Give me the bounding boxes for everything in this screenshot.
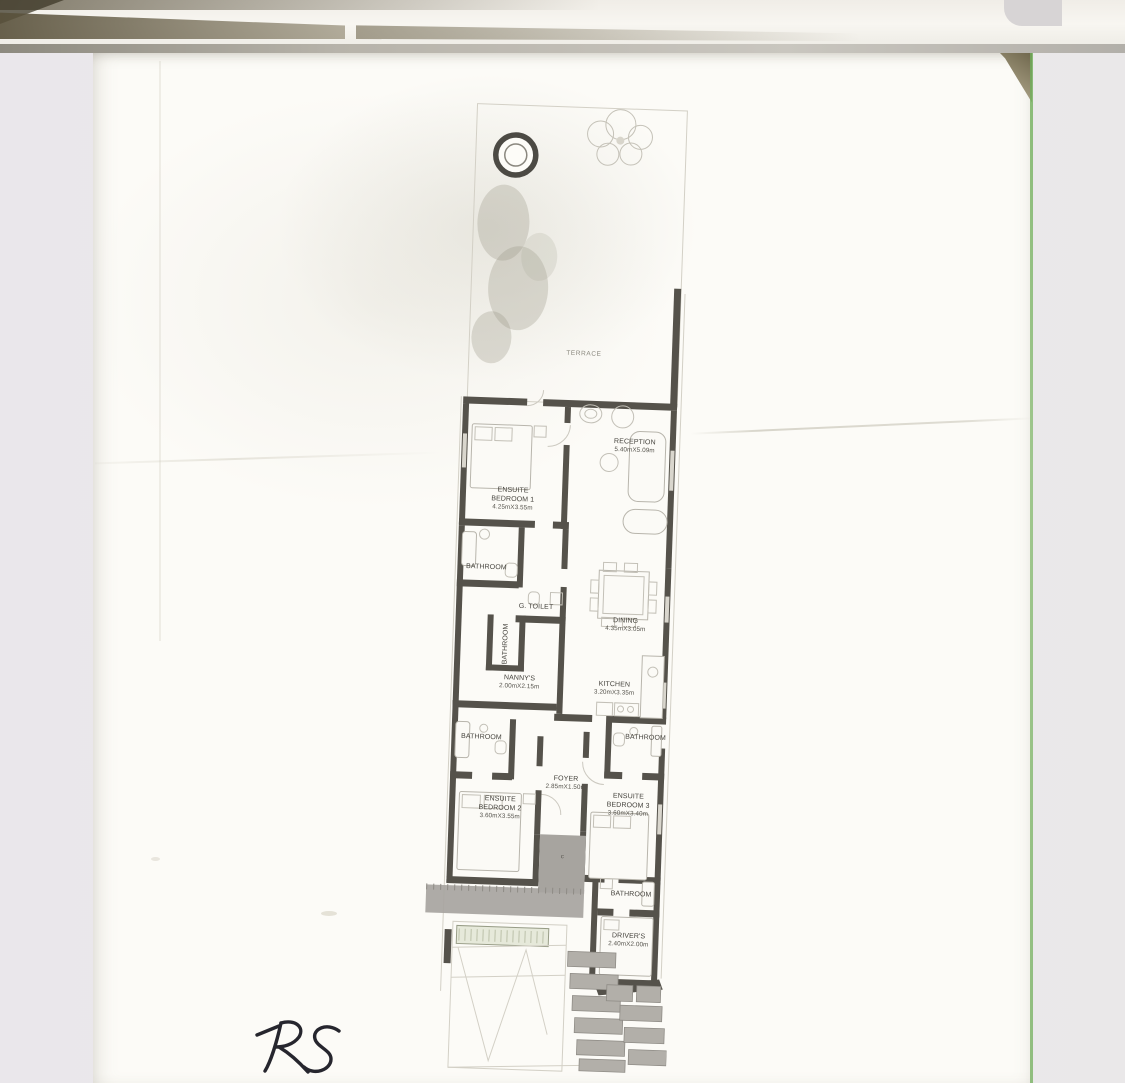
room-label-bedroom1: ENSUITE BEDROOM 1 4.25mX3.55m — [480, 485, 545, 514]
tree-icon — [586, 109, 653, 167]
floor-plan-page: TERRACE RECEPTION 5.40mX5.09m ENSUITE BE… — [93, 53, 1032, 1083]
handwritten-initials — [243, 1005, 373, 1083]
room-name: BATHROOM — [500, 619, 511, 669]
room-label-bedroom2: ENSUITE BEDROOM 2 3.60mX3.55m — [468, 794, 533, 823]
room-name: ENSUITE BEDROOM 3 — [596, 791, 661, 811]
room-label-bedroom3: ENSUITE BEDROOM 3 3.60mX3.40m — [596, 791, 661, 820]
paper-crease — [159, 61, 161, 641]
paper-crease — [690, 417, 1034, 435]
room-label-bathroom-shaft: BATHROOM — [500, 619, 511, 669]
terrace-planting — [471, 184, 560, 366]
sheet-shadow — [0, 0, 600, 10]
room-label-drivers: DRIVER'S 2.40mX2.00m — [596, 931, 661, 950]
sheet-fold-shadow — [356, 24, 861, 41]
previous-sheet-edge — [0, 0, 1125, 44]
room-name: ENSUITE BEDROOM 1 — [481, 485, 546, 505]
room-label-dining: DINING 4.35mX3.05m — [593, 615, 658, 634]
sheet-fold-shadow — [0, 11, 345, 39]
paper-crease — [95, 452, 440, 465]
room-label-reception: RECEPTION 5.40mX5.09m — [602, 437, 667, 456]
sheet-corner-grey — [1004, 0, 1062, 26]
room-label-nannys: NANNY'S 2.00mX2.15m — [487, 673, 552, 692]
sheet-gap-shadow — [0, 44, 1125, 53]
paper-blemish — [321, 911, 337, 916]
page-green-edge — [1030, 53, 1033, 1083]
room-name: ENSUITE BEDROOM 2 — [468, 794, 533, 814]
room-label-kitchen: KITCHEN 3.20mX3.35m — [582, 679, 647, 698]
paper-blemish — [151, 857, 160, 861]
room-label-foyer: FOYER 2.85mX1.50m — [534, 773, 599, 792]
scanned-photo: TERRACE RECEPTION 5.40mX5.09m ENSUITE BE… — [0, 0, 1125, 1083]
planter-strip — [456, 925, 549, 946]
round-planter-icon — [495, 134, 536, 175]
page-corner-fold — [1000, 53, 1032, 107]
floor-plan: TERRACE RECEPTION 5.40mX5.09m ENSUITE BE… — [395, 90, 699, 1083]
